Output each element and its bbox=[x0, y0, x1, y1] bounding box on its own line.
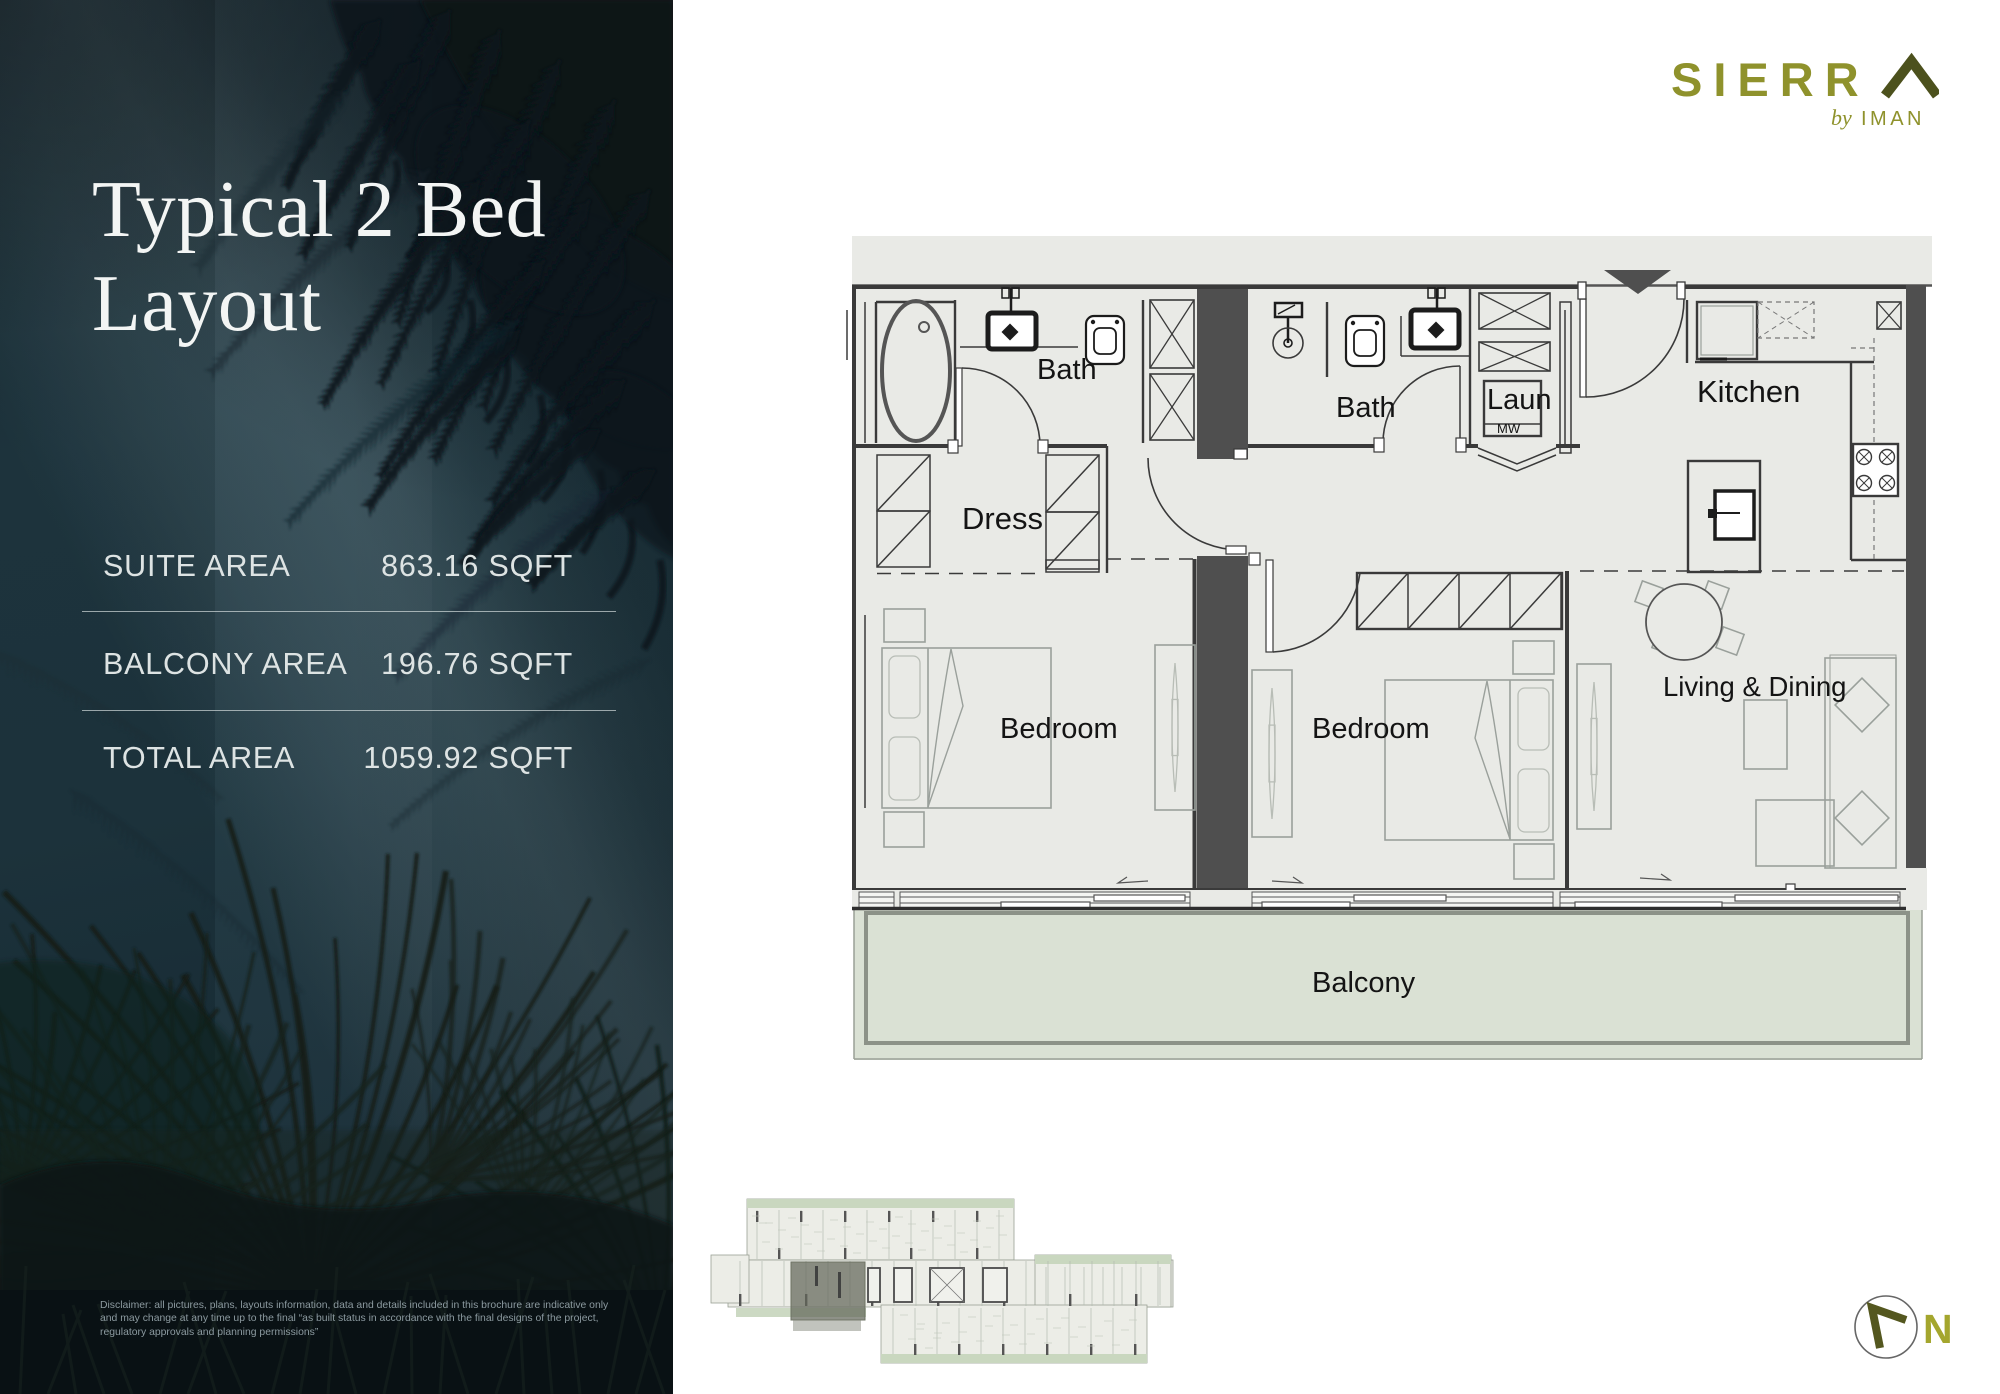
svg-text:Bath: Bath bbox=[1037, 354, 1097, 386]
svg-text:Bath: Bath bbox=[1336, 392, 1396, 424]
svg-text:Bedroom: Bedroom bbox=[1000, 713, 1118, 745]
svg-text:Bedroom: Bedroom bbox=[1312, 713, 1430, 745]
svg-text:Kitchen: Kitchen bbox=[1697, 374, 1800, 409]
svg-text:Laun: Laun bbox=[1487, 384, 1552, 416]
svg-text:Living & Dining: Living & Dining bbox=[1663, 671, 1846, 702]
svg-text:Balcony: Balcony bbox=[1312, 967, 1416, 999]
svg-text:N: N bbox=[1923, 1306, 1953, 1352]
svg-text:Dress: Dress bbox=[962, 501, 1043, 536]
svg-text:MW: MW bbox=[1497, 421, 1521, 436]
